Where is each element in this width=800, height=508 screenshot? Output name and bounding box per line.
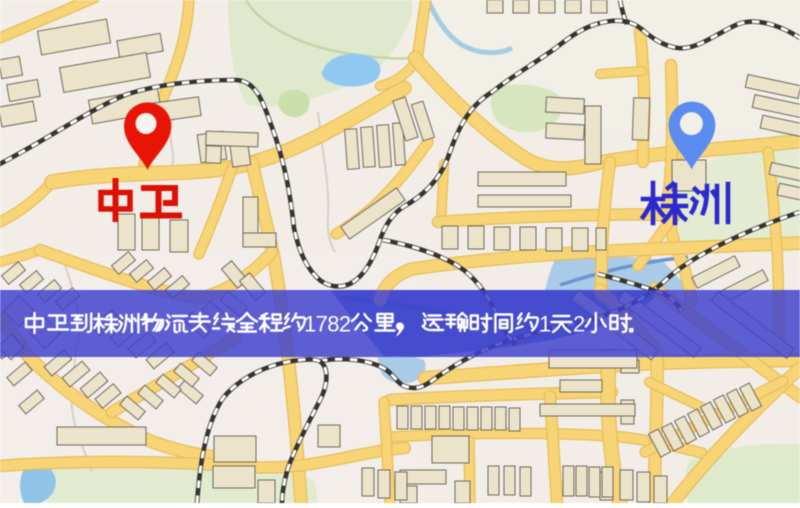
svg-text:1: 1 [539,312,551,337]
svg-text:1782: 1782 [304,312,351,337]
svg-text:2: 2 [573,312,585,337]
